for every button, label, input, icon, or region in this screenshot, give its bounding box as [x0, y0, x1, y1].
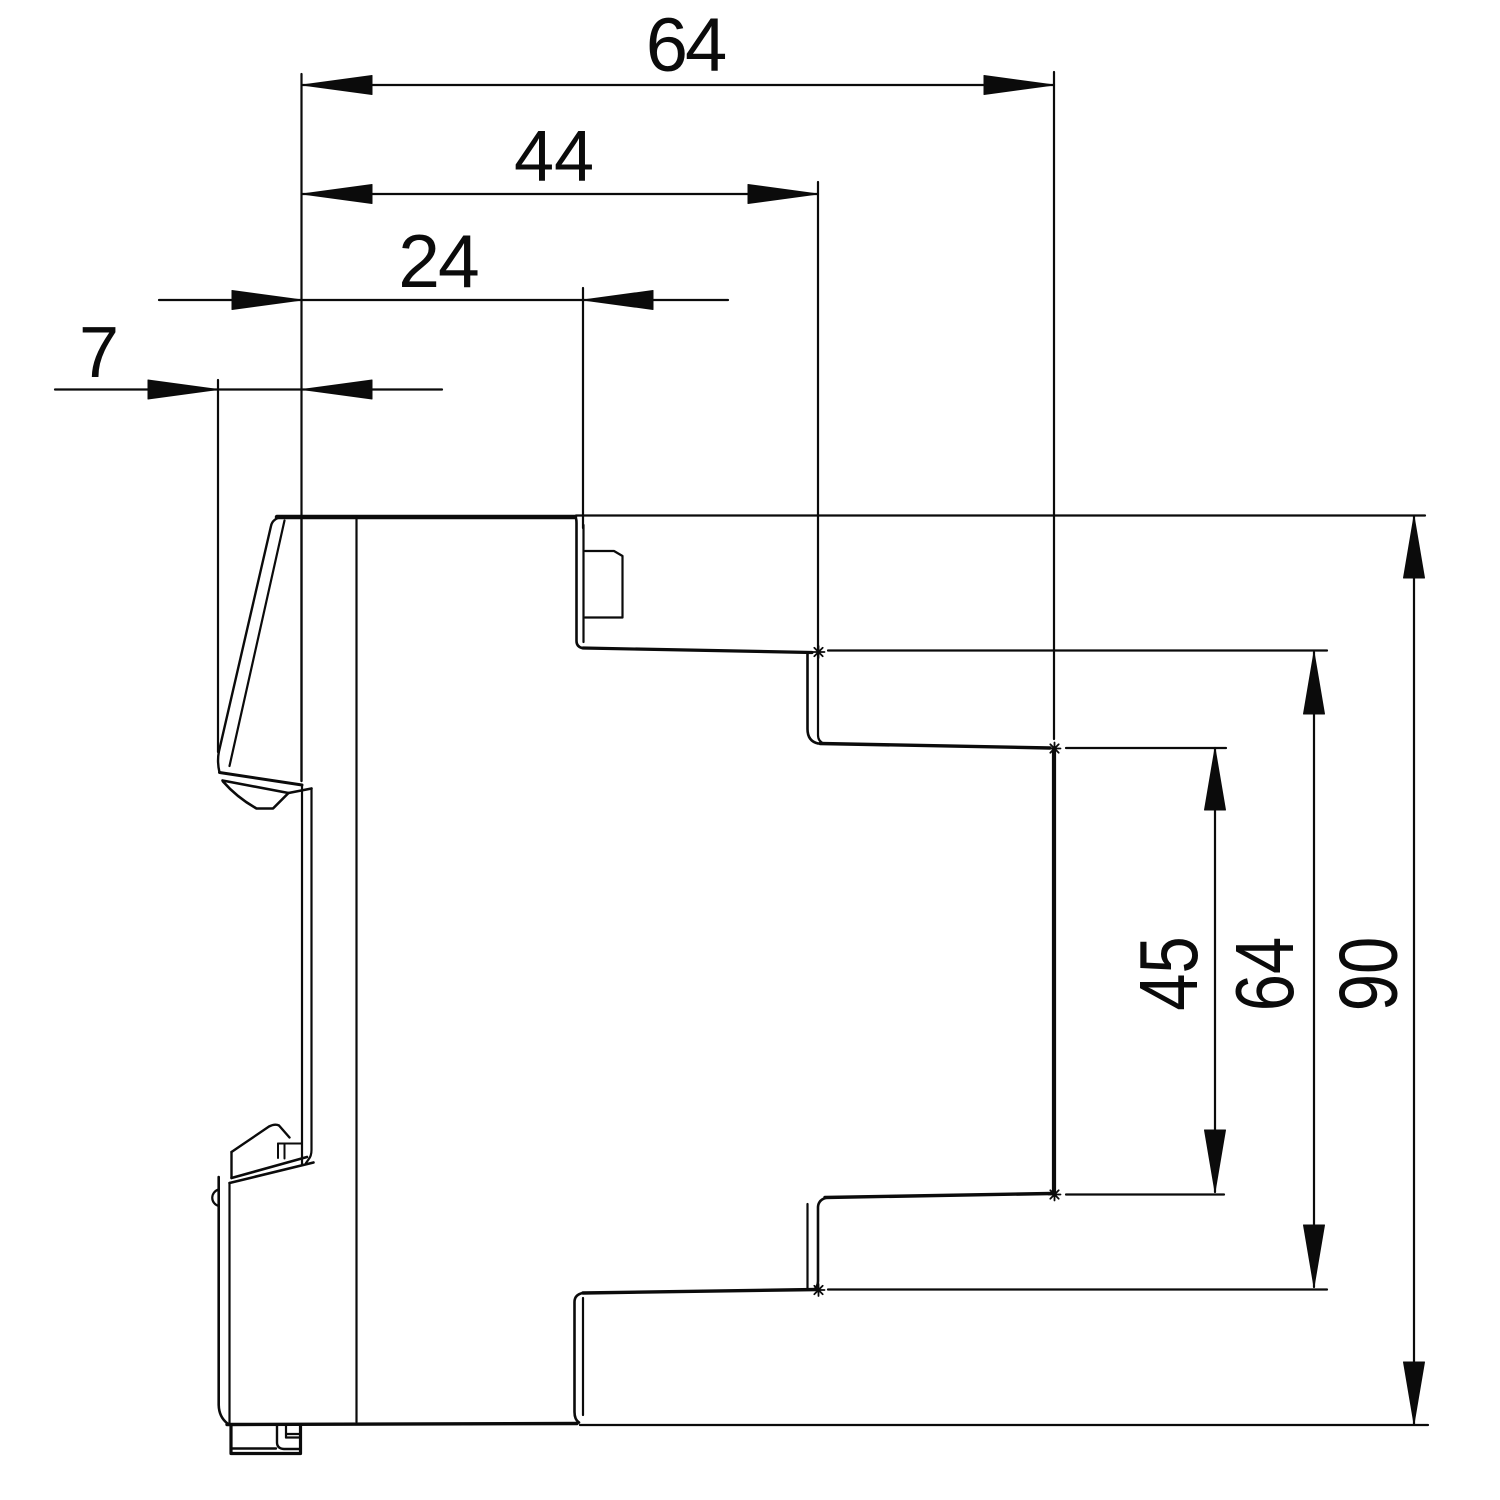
svg-text:64: 64	[646, 3, 726, 88]
svg-text:45: 45	[1122, 936, 1214, 1010]
svg-text:44: 44	[514, 117, 594, 197]
svg-text:7: 7	[79, 313, 119, 393]
svg-text:24: 24	[398, 219, 478, 303]
svg-text:90: 90	[1322, 937, 1414, 1011]
svg-text:64: 64	[1218, 937, 1310, 1011]
